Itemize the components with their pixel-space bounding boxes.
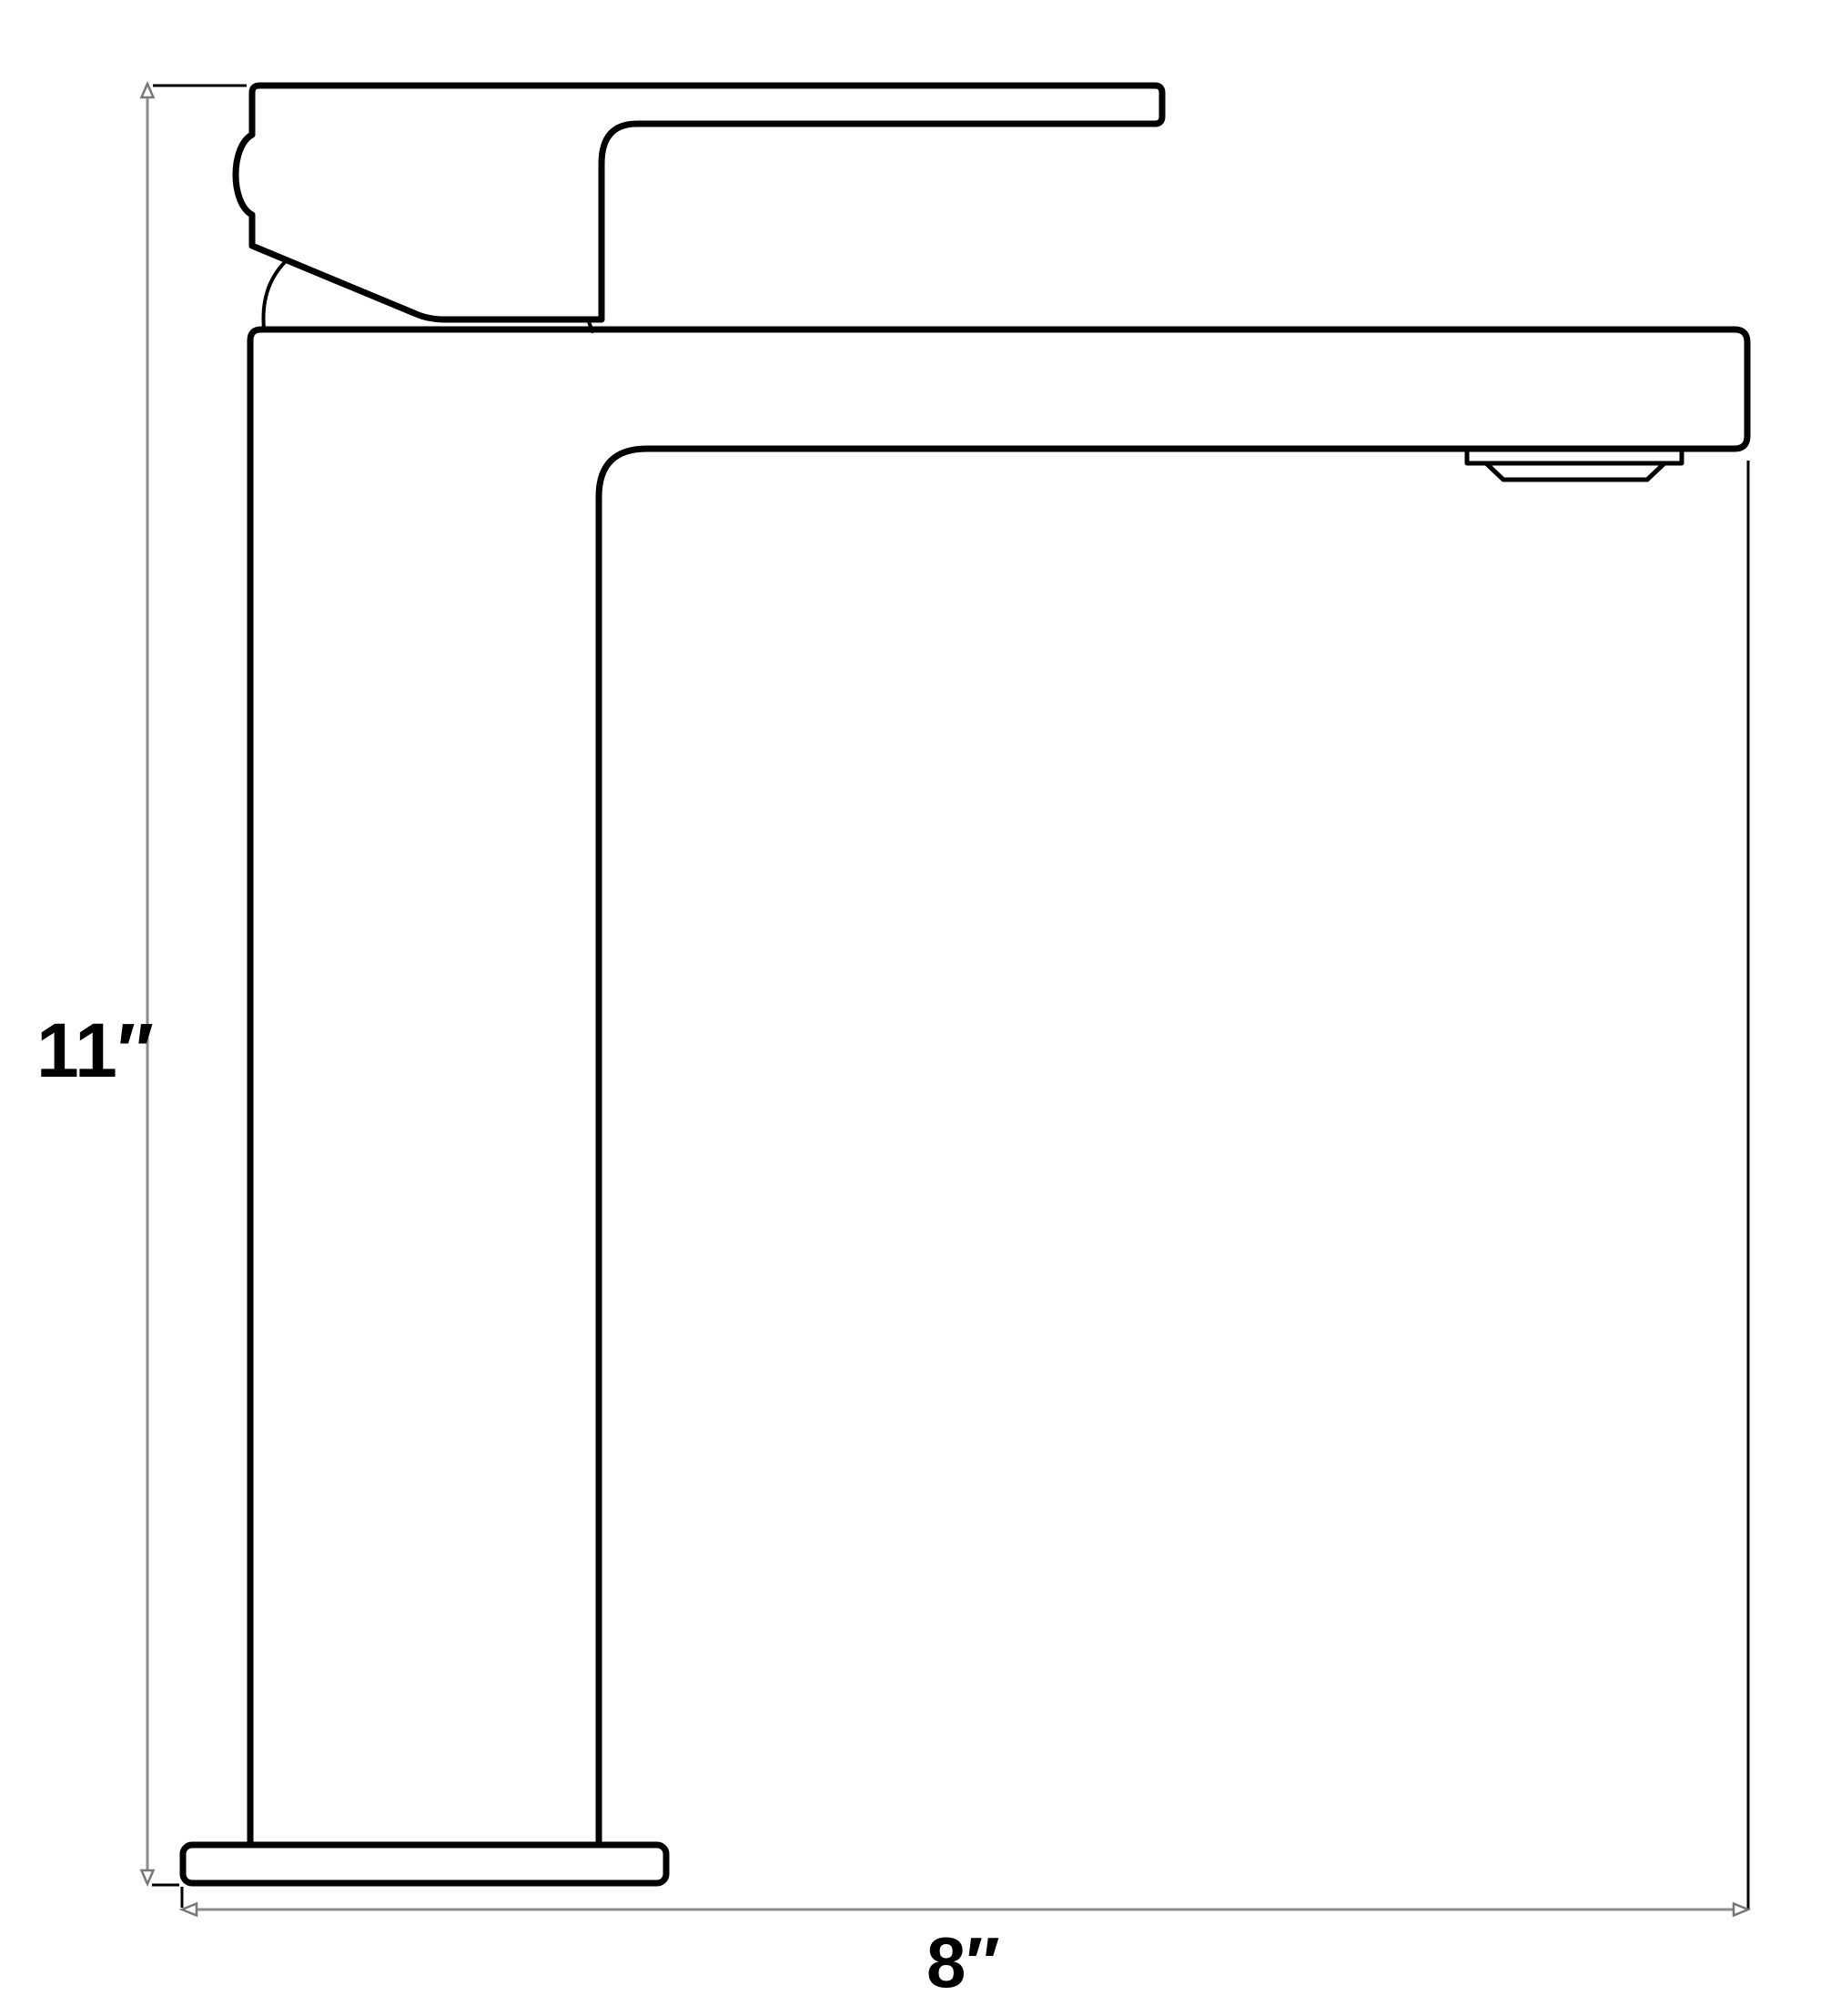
arrow-left-icon — [182, 1904, 197, 1916]
handle-pivot-arc — [263, 262, 285, 329]
arrow-up-icon — [142, 84, 154, 97]
width-label: 8″ — [926, 1922, 1000, 2002]
height-label: 11″ — [36, 1008, 154, 1093]
arrow-right-icon — [1734, 1904, 1748, 1916]
width-dimension: 8″ — [182, 461, 1748, 2002]
handle-outline — [236, 86, 1162, 319]
spout-body-outline — [250, 329, 1747, 1845]
diagram-canvas: 11″ 8″ — [0, 0, 1831, 2016]
aerator-rim — [1467, 449, 1682, 463]
faucet-drawing — [183, 86, 1747, 1883]
faucet-dimension-diagram: 11″ 8″ — [0, 0, 1831, 2016]
base-plate — [183, 1845, 666, 1883]
aerator-cap — [1486, 463, 1664, 480]
arrow-down-icon — [142, 1870, 154, 1884]
height-dimension: 11″ — [36, 84, 247, 1885]
